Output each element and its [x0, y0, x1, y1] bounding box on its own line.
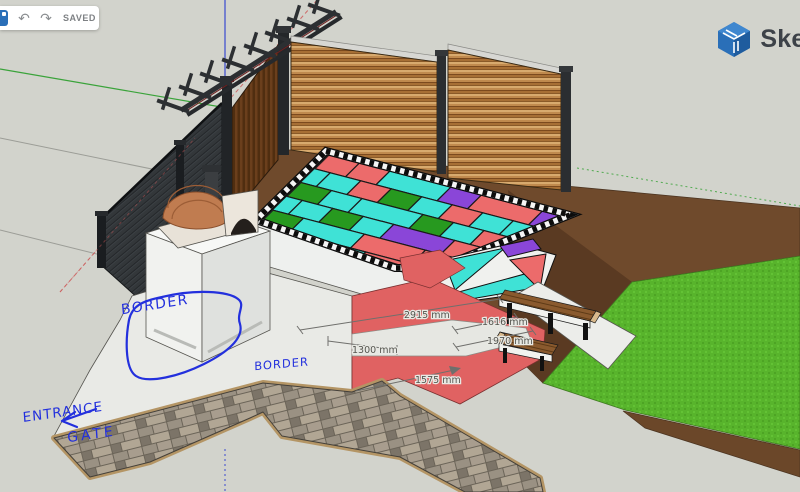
app-menu-icon[interactable]: [0, 10, 8, 26]
dim-1300: 1300 mm: [352, 345, 398, 356]
dim-2915: 2915 mm: [404, 310, 450, 321]
model-viewport[interactable]: 2915 mm 1616 mm 1300 mm 1970 mm 1575 mm …: [0, 0, 800, 492]
sketchup-brand: Sket: [716, 20, 800, 58]
undo-icon[interactable]: ↶: [13, 7, 35, 29]
dim-1616: 1616 mm: [482, 317, 528, 328]
sketchup-logo-icon: [716, 20, 752, 58]
sketchup-web-window: 2915 mm 1616 mm 1300 mm 1970 mm 1575 mm …: [0, 0, 800, 492]
brand-wordmark: Sket: [760, 25, 800, 54]
quick-toolbar: ↶ ↷ SAVED: [0, 6, 99, 30]
dim-1575: 1575 mm: [415, 375, 461, 386]
redo-icon[interactable]: ↷: [35, 7, 57, 29]
dim-1970: 1970 mm: [487, 336, 533, 347]
save-status-badge: SAVED: [63, 13, 96, 23]
